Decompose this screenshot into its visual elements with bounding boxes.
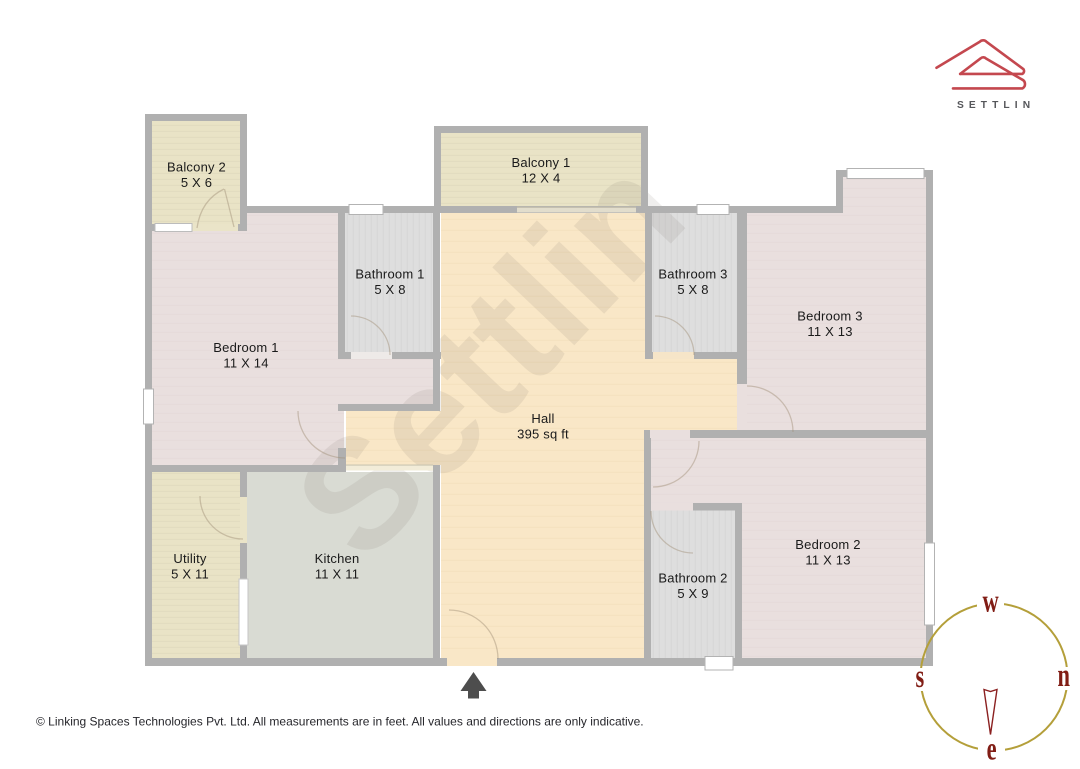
svg-text:s: s bbox=[916, 659, 925, 695]
svg-text:11 X 13: 11 X 13 bbox=[807, 324, 852, 339]
svg-text:11 X 11: 11 X 11 bbox=[315, 567, 359, 582]
svg-text:395 sq ft: 395 sq ft bbox=[517, 427, 569, 442]
svg-text:Bedroom 2: Bedroom 2 bbox=[795, 537, 860, 552]
svg-text:11 X 13: 11 X 13 bbox=[805, 553, 850, 568]
svg-text:SETTLIN: SETTLIN bbox=[957, 100, 1035, 111]
svg-text:Bedroom 1: Bedroom 1 bbox=[213, 340, 278, 355]
svg-text:Bathroom 1: Bathroom 1 bbox=[355, 267, 424, 282]
svg-text:5 X 6: 5 X 6 bbox=[181, 175, 212, 190]
svg-text:12 X 4: 12 X 4 bbox=[522, 171, 561, 186]
svg-text:Balcony 1: Balcony 1 bbox=[512, 155, 571, 170]
svg-text:Balcony 2: Balcony 2 bbox=[167, 160, 226, 175]
svg-text:Hall: Hall bbox=[531, 411, 554, 426]
svg-text:Bedroom 3: Bedroom 3 bbox=[797, 309, 862, 324]
svg-text:Utility: Utility bbox=[173, 551, 206, 566]
svg-text:© Linking Spaces Technologies: © Linking Spaces Technologies Pvt. Ltd. … bbox=[36, 714, 644, 728]
svg-text:5 X 8: 5 X 8 bbox=[677, 282, 708, 297]
svg-text:Bathroom 2: Bathroom 2 bbox=[658, 571, 727, 586]
svg-text:Bathroom 3: Bathroom 3 bbox=[658, 267, 727, 282]
svg-text:e: e bbox=[987, 731, 997, 764]
svg-text:5 X 9: 5 X 9 bbox=[677, 586, 708, 601]
svg-text:5 X 8: 5 X 8 bbox=[374, 282, 405, 297]
svg-text:11 X 14: 11 X 14 bbox=[223, 356, 268, 371]
svg-text:5 X 11: 5 X 11 bbox=[171, 567, 209, 582]
svg-text:n: n bbox=[1058, 658, 1071, 694]
svg-text:Kitchen: Kitchen bbox=[315, 551, 360, 566]
svg-text:w: w bbox=[982, 583, 999, 619]
